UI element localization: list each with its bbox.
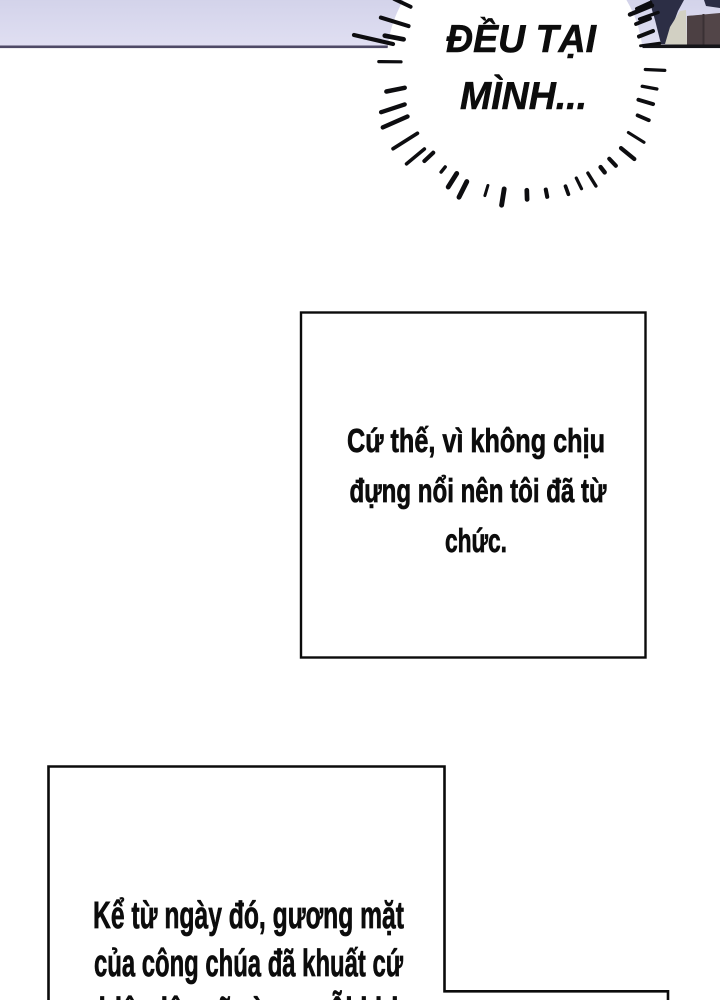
svg-text:ĐỀU TẠI: ĐỀU TẠI: [446, 17, 597, 61]
svg-text:Kể từ ngày đó, gương mặt: Kể từ ngày đó, gương mặt: [93, 895, 404, 937]
svg-text:đựng nổi nên tôi đã từ: đựng nổi nên tôi đã từ: [350, 472, 607, 509]
svg-text:Cứ thế, vì không chịu: Cứ thế, vì không chịu: [347, 422, 605, 459]
svg-text:MÌNH...: MÌNH...: [460, 74, 587, 118]
svg-text:chức.: chức.: [445, 522, 507, 559]
svg-text:của công chúa đã khuất cứ: của công chúa đã khuất cứ: [94, 943, 403, 985]
svg-text:hiện lên rõ ràng mỗi khi: hiện lên rõ ràng mỗi khi: [99, 989, 399, 1000]
